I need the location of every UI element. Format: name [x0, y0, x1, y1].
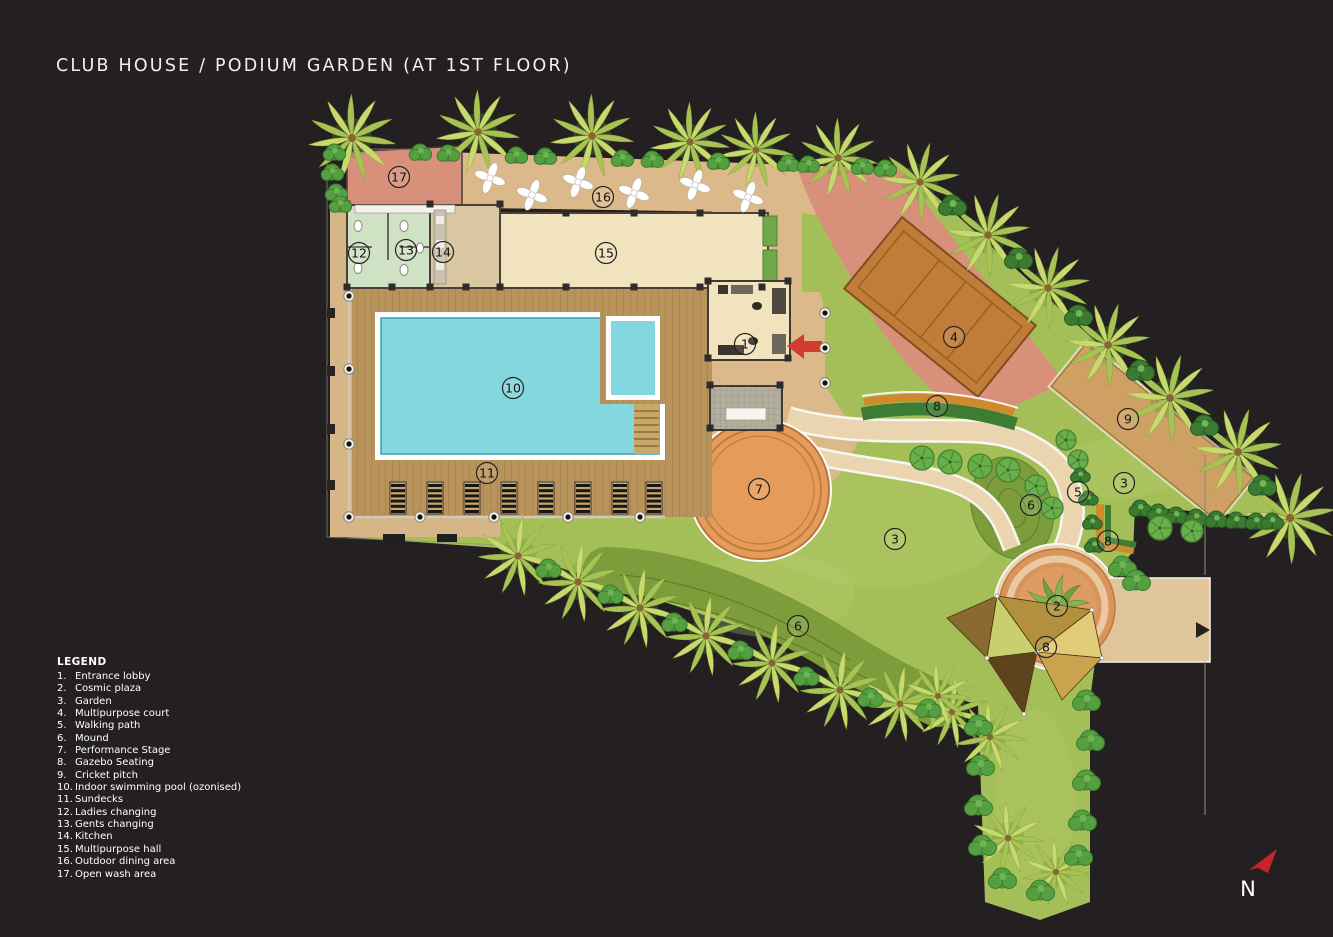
plan-marker-8: 8: [927, 396, 948, 417]
plan-marker-9: 9: [1118, 409, 1139, 430]
svg-text:1: 1: [741, 336, 749, 351]
svg-text:16: 16: [595, 189, 611, 204]
svg-text:4: 4: [950, 329, 958, 344]
plan-marker-11: 11: [477, 463, 498, 484]
svg-text:2: 2: [1053, 598, 1061, 613]
plan-marker-14: 14: [433, 242, 454, 263]
legend-item-number: 4.: [57, 708, 75, 720]
plan-marker-16: 16: [593, 187, 614, 208]
legend-item-number: 5.: [57, 720, 75, 732]
plan-marker-8: 8: [1098, 531, 1119, 552]
plan-marker-2: 2: [1047, 596, 1068, 617]
legend-item-label: Open wash area: [75, 869, 156, 881]
plan-marker-15: 15: [596, 243, 617, 264]
svg-text:11: 11: [479, 465, 495, 480]
legend-item-label: Kitchen: [75, 831, 113, 843]
legend-item-number: 11.: [57, 794, 75, 806]
legend-item-label: Sundecks: [75, 794, 123, 806]
legend-item-13: 13.Gents changing: [57, 819, 241, 831]
plan-marker-7: 7: [749, 479, 770, 500]
plan-marker-4: 4: [944, 327, 965, 348]
legend-item-label: Mound: [75, 733, 109, 745]
legend-item-number: 6.: [57, 733, 75, 745]
svg-text:8: 8: [1042, 639, 1050, 654]
legend-heading: LEGEND: [57, 656, 241, 668]
legend: LEGEND 1.Entrance lobby2.Cosmic plaza3.G…: [57, 656, 241, 881]
legend-item-11: 11.Sundecks: [57, 794, 241, 806]
legend-item-10: 10.Indoor swimming pool (ozonised): [57, 782, 241, 794]
legend-item-label: Multipurpose hall: [75, 844, 161, 856]
legend-item-12: 12.Ladies changing: [57, 807, 241, 819]
legend-item-label: Gazebo Seating: [75, 757, 154, 769]
legend-item-3: 3.Garden: [57, 696, 241, 708]
legend-item-number: 12.: [57, 807, 75, 819]
svg-text:17: 17: [391, 169, 407, 184]
legend-item-number: 3.: [57, 696, 75, 708]
legend-item-15: 15.Multipurpose hall: [57, 844, 241, 856]
legend-item-7: 7.Performance Stage: [57, 745, 241, 757]
svg-text:7: 7: [755, 481, 763, 496]
legend-item-number: 14.: [57, 831, 75, 843]
svg-text:13: 13: [398, 242, 414, 257]
legend-items: 1.Entrance lobby2.Cosmic plaza3.Garden4.…: [57, 671, 241, 881]
legend-item-1: 1.Entrance lobby: [57, 671, 241, 683]
legend-item-16: 16.Outdoor dining area: [57, 856, 241, 868]
legend-item-label: Indoor swimming pool (ozonised): [75, 782, 241, 794]
plan-marker-17: 17: [389, 167, 410, 188]
plan-marker-13: 13: [396, 240, 417, 261]
plan-marker-1: 1: [735, 334, 756, 355]
legend-item-label: Walking path: [75, 720, 140, 732]
legend-item-4: 4.Multipurpose court: [57, 708, 241, 720]
legend-item-label: Gents changing: [75, 819, 154, 831]
legend-item-number: 7.: [57, 745, 75, 757]
legend-item-label: Cricket pitch: [75, 770, 138, 782]
legend-item-number: 9.: [57, 770, 75, 782]
legend-item-number: 8.: [57, 757, 75, 769]
plan-marker-3: 3: [1114, 473, 1135, 494]
svg-text:5: 5: [1074, 484, 1082, 499]
svg-text:15: 15: [598, 245, 614, 260]
legend-item-number: 10.: [57, 782, 75, 794]
svg-text:8: 8: [933, 398, 941, 413]
legend-item-label: Ladies changing: [75, 807, 156, 819]
plan-marker-10: 10: [503, 378, 524, 399]
legend-item-label: Cosmic plaza: [75, 683, 141, 695]
legend-item-number: 15.: [57, 844, 75, 856]
svg-text:3: 3: [1120, 475, 1128, 490]
legend-item-label: Outdoor dining area: [75, 856, 175, 868]
legend-item-6: 6.Mound: [57, 733, 241, 745]
svg-text:8: 8: [1104, 533, 1112, 548]
svg-text:10: 10: [505, 380, 521, 395]
legend-item-number: 13.: [57, 819, 75, 831]
north-label: N: [1240, 877, 1256, 901]
legend-item-9: 9.Cricket pitch: [57, 770, 241, 782]
legend-item-number: 1.: [57, 671, 75, 683]
legend-item-label: Entrance lobby: [75, 671, 151, 683]
legend-item-2: 2.Cosmic plaza: [57, 683, 241, 695]
svg-text:14: 14: [435, 244, 451, 259]
legend-item-number: 17.: [57, 869, 75, 881]
legend-item-14: 14.Kitchen: [57, 831, 241, 843]
svg-text:6: 6: [794, 618, 802, 633]
plan-marker-12: 12: [349, 243, 370, 264]
legend-item-label: Performance Stage: [75, 745, 170, 757]
legend-item-number: 2.: [57, 683, 75, 695]
legend-item-17: 17.Open wash area: [57, 869, 241, 881]
page-title: CLUB HOUSE / PODIUM GARDEN (AT 1ST FLOOR…: [56, 56, 572, 76]
legend-item-number: 16.: [57, 856, 75, 868]
plan-marker-8: 8: [1036, 637, 1057, 658]
legend-item-5: 5.Walking path: [57, 720, 241, 732]
svg-text:12: 12: [351, 245, 367, 260]
svg-text:9: 9: [1124, 411, 1132, 426]
svg-text:3: 3: [891, 531, 899, 546]
plan-marker-6: 6: [1021, 495, 1042, 516]
legend-item-8: 8.Gazebo Seating: [57, 757, 241, 769]
plan-marker-3: 3: [885, 529, 906, 550]
legend-item-label: Multipurpose court: [75, 708, 169, 720]
plan-marker-6: 6: [788, 616, 809, 637]
plan-marker-5: 5: [1068, 482, 1089, 503]
legend-item-label: Garden: [75, 696, 112, 708]
svg-text:6: 6: [1027, 497, 1035, 512]
